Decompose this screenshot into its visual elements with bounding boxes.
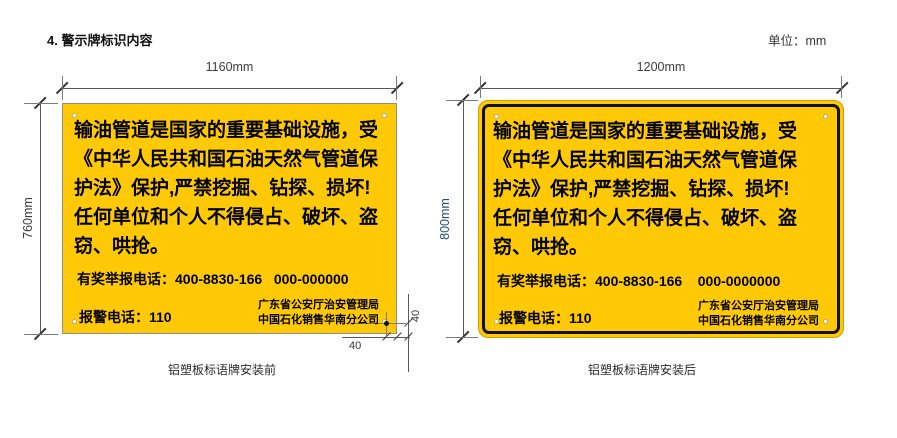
extension-line xyxy=(480,76,481,98)
extension-line xyxy=(62,76,63,100)
agency-names: 广东省公安厅治安管理局 中国石化销售华南分公司 xyxy=(258,298,379,327)
dimension-line xyxy=(480,88,842,89)
extension-line xyxy=(446,100,478,101)
figure-caption: 铝塑板标语牌安装后 xyxy=(588,361,696,378)
page-title: 4. 警示牌标识内容 xyxy=(47,30,152,49)
warning-sign-board: 输油管道是国家的重要基础设施，受 《中华人民共和国石油天然气管道保 护法》保护,… xyxy=(62,103,397,334)
reward-hotline: 有奖举报电话：400-8830-166 000-0000000 xyxy=(493,271,829,291)
dimension-line xyxy=(40,103,41,334)
hole-offset-v-label: 40 xyxy=(410,306,422,326)
hole-offset-h-label: 40 xyxy=(349,340,361,352)
width-dimension-label: 1160mm xyxy=(62,60,397,74)
warning-sign-board: 输油管道是国家的重要基础设施，受 《中华人民共和国石油天然气管道保 护法》保护,… xyxy=(478,100,844,338)
spec-sheet: 4. 警示牌标识内容 单位：mm 1160mm 760mm 输油管道是国家的重要… xyxy=(0,0,897,438)
width-dimension-label: 1200mm xyxy=(480,60,842,74)
extension-line xyxy=(24,334,58,335)
police-phone: 报警电话：110 xyxy=(499,308,592,328)
sign-main-text: 输油管道是国家的重要基础设施，受 《中华人民共和国石油天然气管道保 护法》保护,… xyxy=(74,116,385,261)
height-dimension-label: 800mm xyxy=(438,189,452,249)
height-dimension-label: 760mm xyxy=(21,188,35,248)
extension-line xyxy=(396,76,397,100)
agency-names: 广东省公安厅治安管理局 中国石化销售华南分公司 xyxy=(698,299,819,328)
extension-line xyxy=(446,337,478,338)
dimension-line xyxy=(408,294,409,372)
dimension-line xyxy=(342,337,410,338)
sign-main-text: 输油管道是国家的重要基础设施，受 《中华人民共和国石油天然气管道保 护法》保护,… xyxy=(493,117,829,262)
dimension-line xyxy=(463,100,464,338)
unit-label: 单位：mm xyxy=(768,30,826,49)
extension-line xyxy=(841,76,842,98)
extension-line xyxy=(24,103,58,104)
reward-hotline: 有奖举报电话：400-8830-166 000-000000 xyxy=(74,269,385,289)
police-phone: 报警电话：110 xyxy=(79,307,172,327)
figure-caption: 铝塑板标语牌安装前 xyxy=(168,361,276,378)
dimension-line xyxy=(62,88,397,89)
